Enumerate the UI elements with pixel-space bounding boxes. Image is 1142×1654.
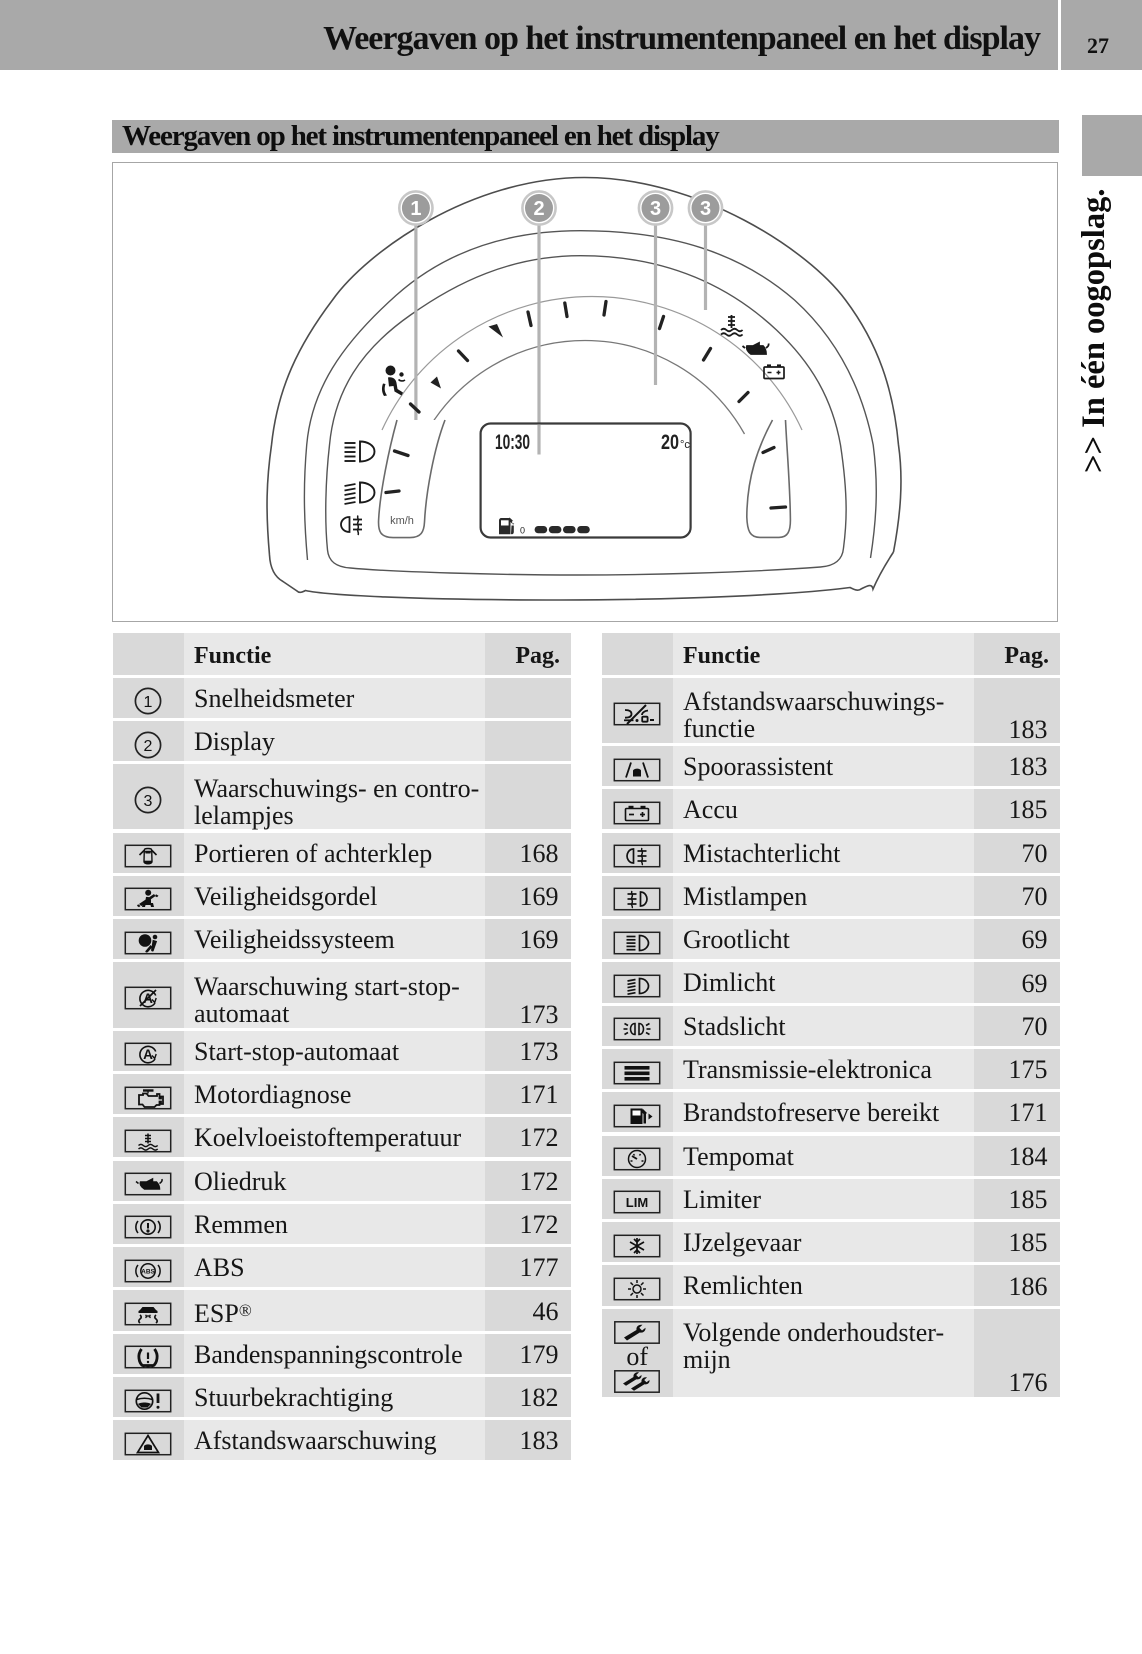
- svg-text:1: 1: [144, 694, 153, 711]
- svg-text:0: 0: [520, 526, 525, 536]
- svg-text:3: 3: [144, 793, 153, 810]
- svg-text:km/h: km/h: [390, 515, 414, 527]
- svg-text:2: 2: [533, 198, 544, 220]
- svg-text:3: 3: [649, 198, 660, 220]
- svg-text:ABS: ABS: [141, 1268, 155, 1275]
- svg-text:A: A: [143, 1047, 153, 1062]
- svg-text:3: 3: [699, 198, 710, 220]
- svg-text:10:30: 10:30: [495, 431, 530, 454]
- svg-text:°c: °c: [680, 439, 690, 451]
- svg-text:2: 2: [144, 738, 153, 755]
- svg-text:20: 20: [661, 431, 679, 454]
- svg-text:LIM: LIM: [626, 1195, 648, 1210]
- svg-text:1: 1: [410, 198, 421, 220]
